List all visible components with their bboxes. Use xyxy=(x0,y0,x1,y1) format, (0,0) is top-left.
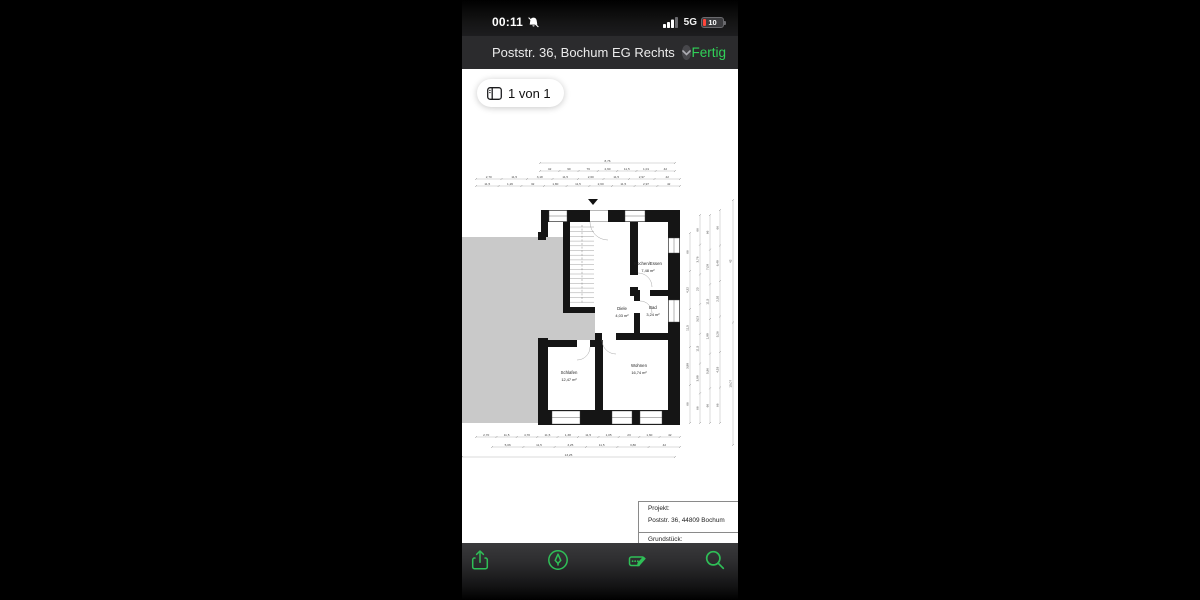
svg-text:1,88: 1,88 xyxy=(706,333,710,339)
svg-text:11,5: 11,5 xyxy=(696,346,700,352)
svg-text:11,5: 11,5 xyxy=(562,175,568,179)
pdf-page[interactable]: 1 von 1 xyxy=(462,69,738,543)
nav-bar: Poststr. 36, Bochum EG Rechts Fertig xyxy=(462,36,738,69)
svg-text:42: 42 xyxy=(663,443,667,447)
svg-text:5,26: 5,26 xyxy=(716,331,720,337)
svg-text:23: 23 xyxy=(627,433,631,437)
bell-slash-icon xyxy=(527,16,540,29)
svg-text:8,76: 8,76 xyxy=(604,159,610,163)
document-title: Poststr. 36, Bochum EG Rechts xyxy=(492,45,675,60)
svg-text:2,70: 2,70 xyxy=(486,175,492,179)
svg-text:66: 66 xyxy=(706,404,710,408)
svg-text:Schlafen: Schlafen xyxy=(561,370,578,375)
svg-text:11,5: 11,5 xyxy=(585,433,591,437)
svg-text:4,03 m²: 4,03 m² xyxy=(615,313,629,318)
svg-text:1,05: 1,05 xyxy=(606,433,612,437)
svg-text:5,96: 5,96 xyxy=(706,368,710,374)
svg-text:4,70: 4,70 xyxy=(524,433,530,437)
done-button[interactable]: Fertig xyxy=(691,45,726,60)
svg-text:23: 23 xyxy=(696,287,700,291)
share-icon[interactable] xyxy=(468,548,492,572)
plan-title-block: Projekt: Poststr. 36, 44809 Bochum Grund… xyxy=(638,501,738,543)
svg-text:1,01: 1,01 xyxy=(643,167,649,171)
svg-text:11,5: 11,5 xyxy=(599,443,605,447)
svg-text:4,53: 4,53 xyxy=(716,366,720,372)
neighbor-unit-area xyxy=(462,237,595,423)
svg-text:15,07: 15,07 xyxy=(729,380,733,388)
svg-text:11,5: 11,5 xyxy=(504,433,510,437)
svg-text:3,88: 3,88 xyxy=(686,363,690,369)
svg-text:11,5: 11,5 xyxy=(706,298,710,304)
entrance-marker xyxy=(588,199,598,205)
bottom-toolbar xyxy=(462,543,738,600)
page-indicator-label: 1 von 1 xyxy=(508,86,551,101)
signal-bars-icon xyxy=(663,17,680,28)
autofill-signature-icon[interactable] xyxy=(625,548,649,572)
svg-text:42: 42 xyxy=(667,182,671,186)
svg-text:3,80: 3,80 xyxy=(630,443,636,447)
svg-text:11,5: 11,5 xyxy=(620,182,626,186)
svg-text:12,47 m²: 12,47 m² xyxy=(561,377,577,382)
stairs xyxy=(570,225,594,304)
project-value: Poststr. 36, 44809 Bochum xyxy=(648,518,738,524)
svg-text:3,03: 3,03 xyxy=(696,316,700,322)
svg-text:11,5: 11,5 xyxy=(575,182,581,186)
svg-text:2,60: 2,60 xyxy=(598,182,604,186)
svg-text:90: 90 xyxy=(567,167,571,171)
svg-text:3,25: 3,25 xyxy=(567,443,573,447)
svg-text:6,48: 6,48 xyxy=(716,260,720,266)
svg-text:11,5: 11,5 xyxy=(613,175,619,179)
project-label: Projekt: xyxy=(648,506,738,512)
svg-text:66: 66 xyxy=(716,403,720,407)
svg-text:Diele: Diele xyxy=(617,306,627,311)
search-icon[interactable] xyxy=(703,548,727,572)
svg-text:4,32: 4,32 xyxy=(686,287,690,293)
phone-screen: 00:11 5G 10 Poststr. 36, Bochum EG Recht… xyxy=(462,0,738,600)
svg-text:7,08: 7,08 xyxy=(706,264,710,270)
svg-text:2,97: 2,97 xyxy=(639,175,645,179)
svg-text:76: 76 xyxy=(586,167,590,171)
svg-text:13,25: 13,25 xyxy=(565,453,573,457)
floorplan-drawing: Kochen/Essen7,48 m²Diele4,03 m²Bad3,24 m… xyxy=(462,155,738,465)
svg-text:Kochen/Essen: Kochen/Essen xyxy=(634,261,662,266)
svg-text:Wohnen: Wohnen xyxy=(631,363,648,368)
svg-text:5,06: 5,06 xyxy=(505,443,511,447)
svg-text:3,88: 3,88 xyxy=(696,375,700,381)
svg-text:2,92: 2,92 xyxy=(716,295,720,301)
svg-text:42: 42 xyxy=(666,175,670,179)
svg-text:32: 32 xyxy=(531,182,535,186)
svg-text:2,70: 2,70 xyxy=(483,433,489,437)
title-block-divider xyxy=(639,532,738,533)
markup-pen-icon[interactable] xyxy=(546,548,570,572)
battery-level-fill xyxy=(703,19,706,26)
svg-text:1,80: 1,80 xyxy=(552,182,558,186)
svg-text:2,60: 2,60 xyxy=(588,175,594,179)
floorplan: Kochen/Essen7,48 m²Diele4,03 m²Bad3,24 m… xyxy=(462,155,738,465)
svg-text:1,26: 1,26 xyxy=(507,182,513,186)
svg-text:42: 42 xyxy=(668,433,672,437)
network-type: 5G xyxy=(684,17,697,28)
svg-text:42: 42 xyxy=(729,259,733,263)
battery-percent: 10 xyxy=(708,18,716,27)
svg-text:66: 66 xyxy=(686,250,690,254)
svg-text:66: 66 xyxy=(686,402,690,406)
svg-text:7,48 m²: 7,48 m² xyxy=(641,268,655,273)
svg-text:66: 66 xyxy=(716,226,720,230)
svg-text:11,5: 11,5 xyxy=(624,167,630,171)
svg-text:11,5: 11,5 xyxy=(511,175,517,179)
svg-text:3,24 m²: 3,24 m² xyxy=(646,312,660,317)
svg-text:66: 66 xyxy=(706,230,710,234)
svg-text:11,5: 11,5 xyxy=(545,433,551,437)
svg-text:3,18: 3,18 xyxy=(537,175,543,179)
svg-text:Bad: Bad xyxy=(649,305,657,310)
entrance-opening xyxy=(590,210,608,221)
svg-text:2,97: 2,97 xyxy=(643,182,649,186)
status-bar: 00:11 5G 10 xyxy=(462,0,738,36)
page-thumbnails-icon xyxy=(487,87,502,100)
svg-text:66: 66 xyxy=(696,406,700,410)
svg-text:1,60: 1,60 xyxy=(646,433,652,437)
svg-text:42: 42 xyxy=(548,167,552,171)
clock: 00:11 xyxy=(492,15,523,29)
svg-text:11,5: 11,5 xyxy=(484,182,490,186)
svg-text:2,60: 2,60 xyxy=(604,167,610,171)
svg-text:42: 42 xyxy=(664,167,668,171)
chevron-down-icon[interactable] xyxy=(682,45,692,60)
battery-icon: 10 xyxy=(701,17,724,28)
plot-label: Grundstück: xyxy=(648,537,738,543)
svg-text:66: 66 xyxy=(696,228,700,232)
svg-text:1,38: 1,38 xyxy=(565,433,571,437)
svg-text:3,76: 3,76 xyxy=(696,256,700,262)
svg-text:11,5: 11,5 xyxy=(536,443,542,447)
svg-text:16,74 m²: 16,74 m² xyxy=(631,370,647,375)
svg-text:11,5: 11,5 xyxy=(686,325,690,331)
page-indicator[interactable]: 1 von 1 xyxy=(477,79,564,107)
